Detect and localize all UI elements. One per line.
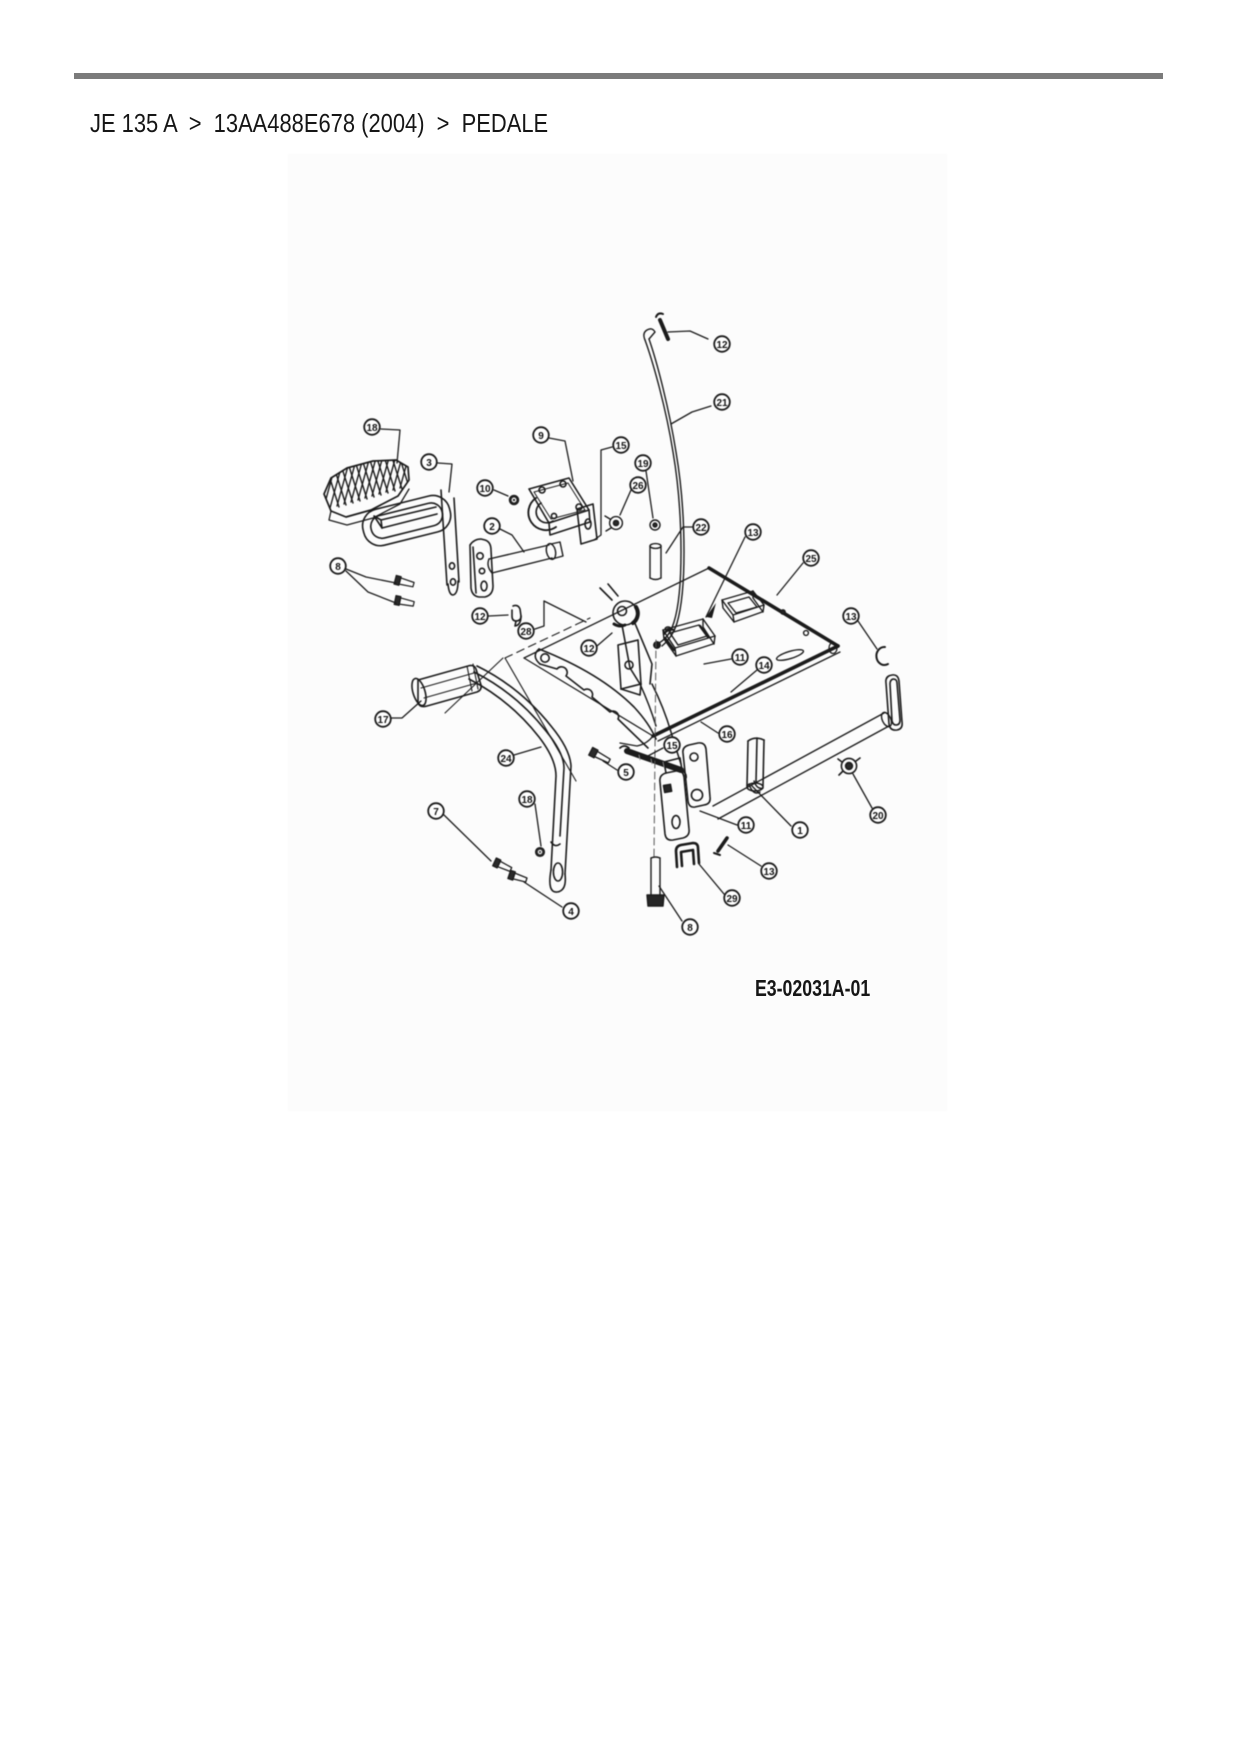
svg-text:13: 13 bbox=[845, 612, 857, 623]
svg-text:7: 7 bbox=[433, 807, 439, 818]
svg-text:29: 29 bbox=[726, 894, 738, 905]
svg-text:17: 17 bbox=[377, 715, 389, 726]
svg-text:3: 3 bbox=[426, 458, 432, 469]
svg-text:8: 8 bbox=[335, 562, 341, 573]
svg-text:19: 19 bbox=[637, 459, 649, 470]
svg-text:4: 4 bbox=[568, 907, 574, 918]
svg-text:11: 11 bbox=[735, 653, 746, 664]
svg-text:1: 1 bbox=[797, 826, 803, 837]
svg-text:21: 21 bbox=[716, 398, 728, 409]
svg-text:18: 18 bbox=[366, 423, 378, 434]
svg-text:12: 12 bbox=[583, 644, 595, 655]
svg-text:12: 12 bbox=[716, 340, 728, 351]
svg-text:25: 25 bbox=[805, 554, 817, 565]
svg-text:18: 18 bbox=[521, 795, 533, 806]
svg-text:2: 2 bbox=[489, 522, 495, 533]
svg-text:11: 11 bbox=[741, 821, 752, 832]
svg-text:16: 16 bbox=[721, 730, 733, 741]
svg-text:5: 5 bbox=[623, 768, 629, 779]
svg-text:28: 28 bbox=[520, 627, 532, 638]
svg-text:15: 15 bbox=[615, 441, 627, 452]
svg-text:15: 15 bbox=[666, 741, 678, 752]
svg-text:12: 12 bbox=[474, 612, 486, 623]
svg-text:13: 13 bbox=[763, 867, 775, 878]
svg-text:20: 20 bbox=[872, 811, 884, 822]
svg-text:14: 14 bbox=[758, 661, 770, 672]
svg-text:13: 13 bbox=[747, 528, 759, 539]
svg-text:10: 10 bbox=[479, 484, 491, 495]
svg-text:22: 22 bbox=[695, 523, 707, 534]
svg-text:8: 8 bbox=[687, 923, 693, 934]
svg-text:9: 9 bbox=[538, 431, 544, 442]
svg-text:26: 26 bbox=[632, 481, 644, 492]
svg-text:24: 24 bbox=[500, 754, 512, 765]
